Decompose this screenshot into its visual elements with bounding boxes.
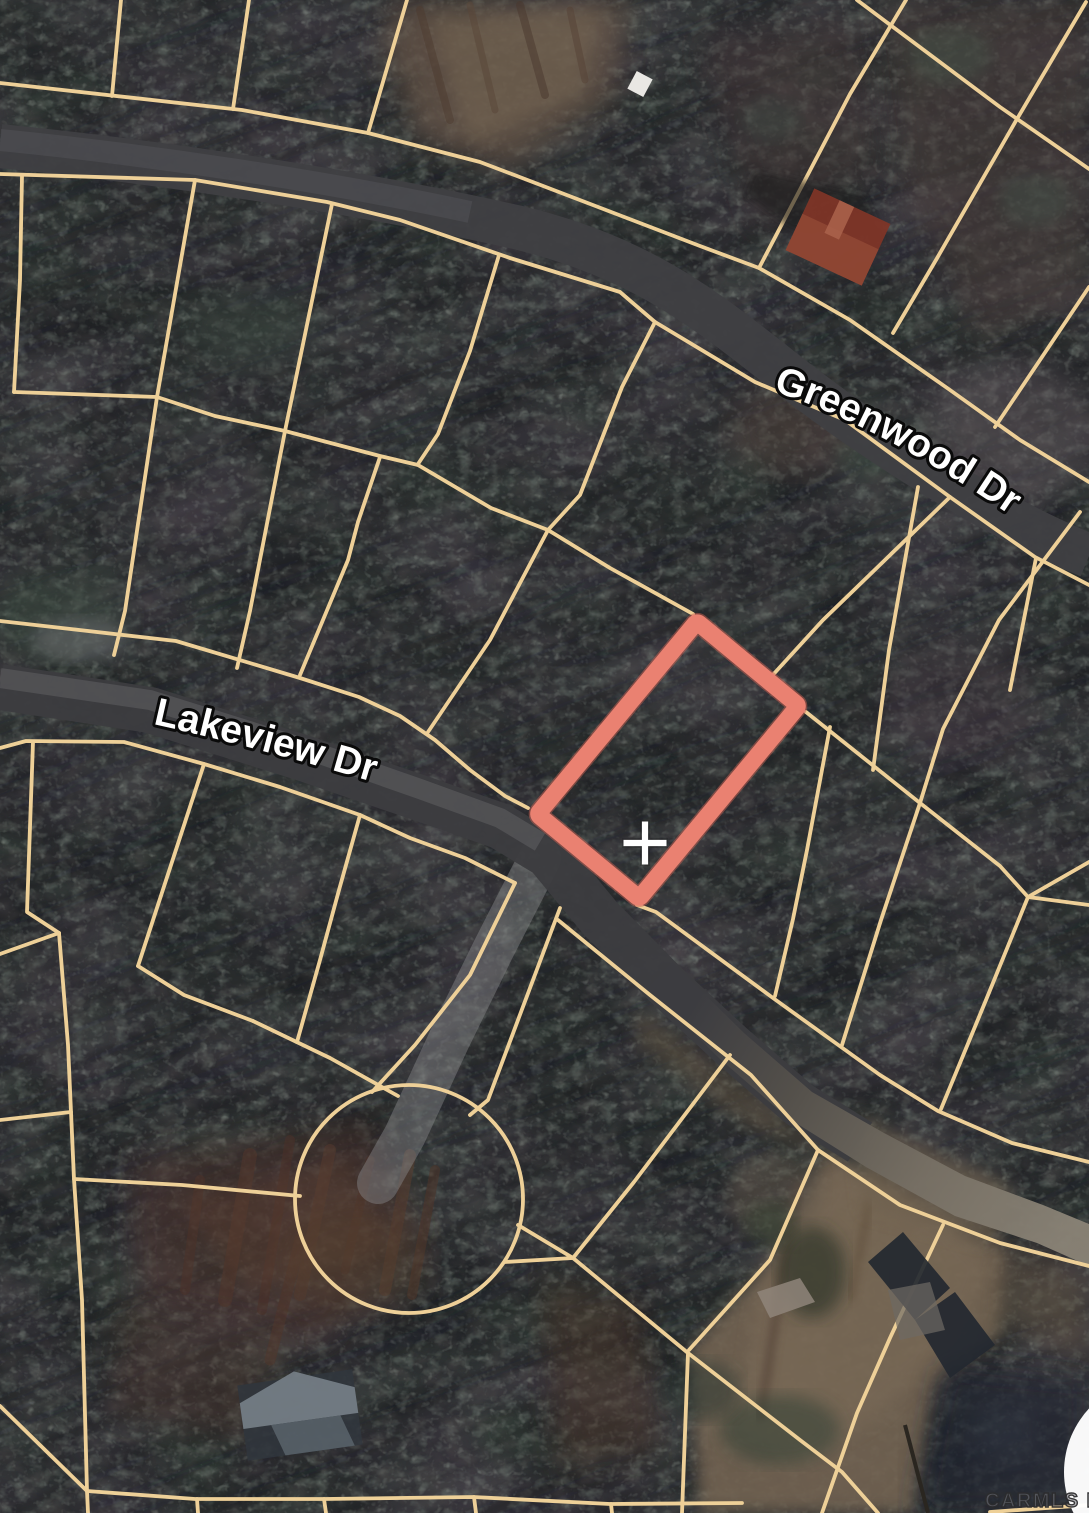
svg-text:CARMLS INC: CARMLS INC xyxy=(985,1490,1089,1512)
